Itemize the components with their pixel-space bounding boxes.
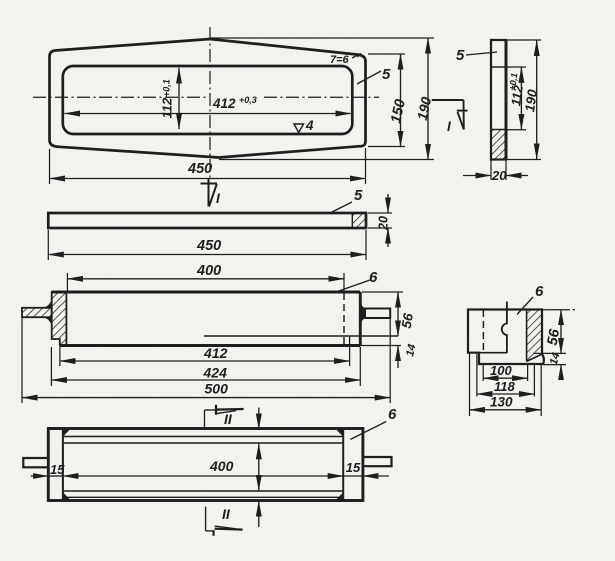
svg-text:II: II [222,506,231,522]
svg-text:I: I [216,191,220,206]
svg-text:20: 20 [491,168,507,183]
svg-text:100: 100 [490,363,512,378]
svg-text:130: 130 [490,395,513,410]
svg-text:400: 400 [209,458,234,474]
svg-text:15: 15 [50,462,65,477]
svg-text:6: 6 [535,283,544,300]
svg-text:6: 6 [369,269,378,286]
svg-text:450: 450 [196,238,221,254]
svg-text:5: 5 [456,47,465,64]
svg-text:5: 5 [354,187,363,204]
svg-text:15: 15 [346,460,361,475]
svg-text:190: 190 [414,95,435,121]
svg-text:6: 6 [388,406,397,423]
svg-text:II: II [224,411,233,427]
svg-text:112: 112 [160,97,175,118]
svg-text:I: I [447,119,451,134]
svg-text:5: 5 [382,66,391,83]
svg-text:4: 4 [305,118,314,133]
svg-text:118: 118 [494,379,515,394]
svg-text:412: 412 [212,96,236,111]
svg-text:400: 400 [196,263,221,279]
svg-text:412: 412 [203,345,228,361]
svg-text:20: 20 [377,216,391,231]
svg-text:+0,1: +0,1 [162,79,172,97]
svg-text:424: 424 [203,365,228,381]
svg-text:500: 500 [205,381,229,397]
svg-text:7=6: 7=6 [330,54,350,66]
svg-text:14: 14 [404,343,418,357]
svg-text:150: 150 [388,98,409,125]
svg-text:+0,3: +0,3 [239,95,257,105]
svg-text:450: 450 [187,161,212,177]
svg-text:190: 190 [522,88,540,113]
svg-text:56: 56 [399,312,416,330]
